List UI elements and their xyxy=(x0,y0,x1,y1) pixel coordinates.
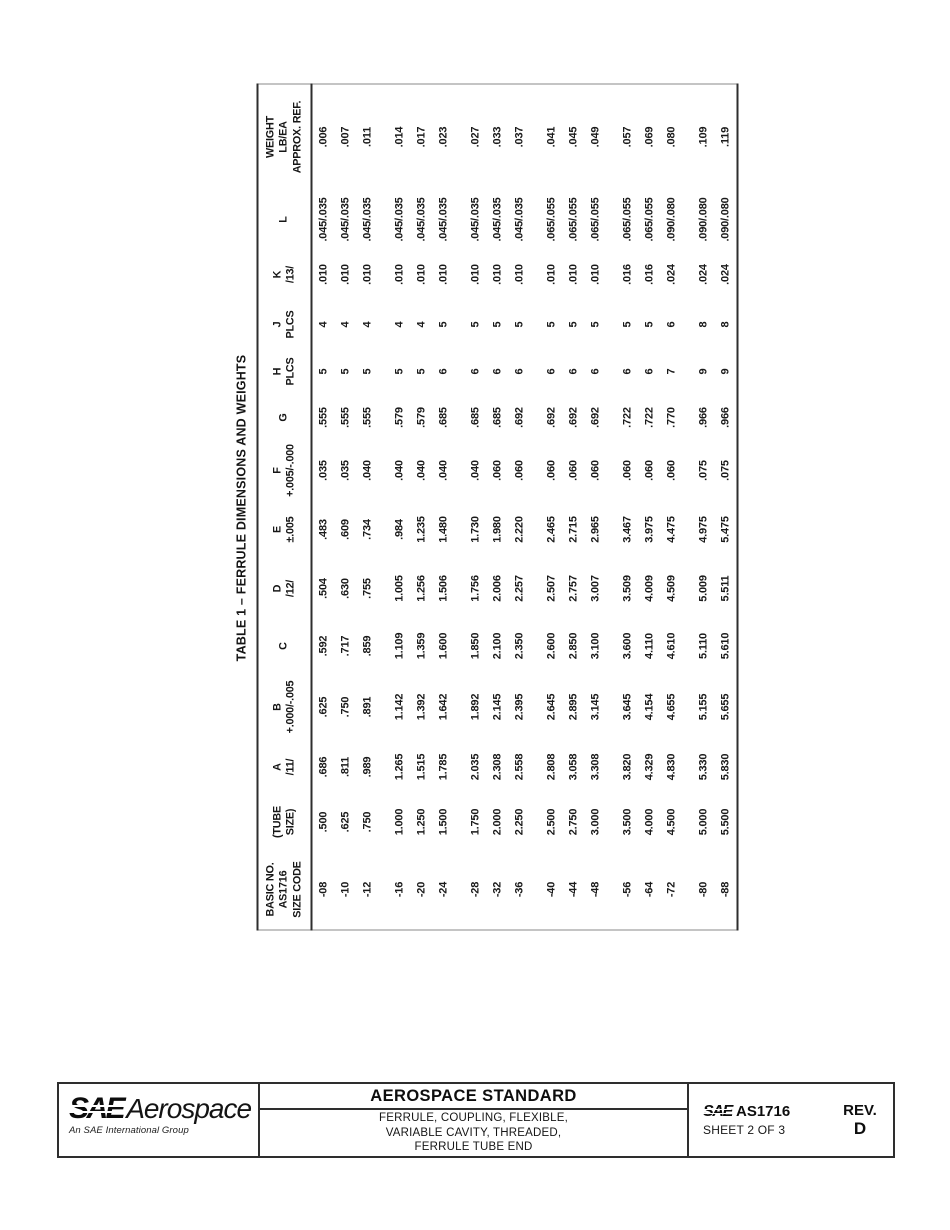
cell-j: 4 xyxy=(335,300,357,350)
cell-size-code: -48 xyxy=(585,850,607,931)
cell-e: 2.465 xyxy=(541,500,563,560)
cell-f: .040 xyxy=(433,442,455,500)
group-spacer xyxy=(531,84,541,930)
group-spacer-cell xyxy=(607,84,617,930)
cell-d: 4.509 xyxy=(661,560,683,618)
cell-h: 6 xyxy=(465,350,487,394)
table-row-size-56: -563.5003.8203.6453.6003.5093.467.060.72… xyxy=(617,84,639,930)
cell-h: 9 xyxy=(715,350,738,394)
table-row-size-36: -362.2502.5582.3952.3502.2572.220.060.69… xyxy=(509,84,531,930)
cell-tube-size: 3.500 xyxy=(617,795,639,850)
group-spacer-cell xyxy=(455,84,465,930)
cell-f: .060 xyxy=(661,442,683,500)
standard-number-line: SAEAS1716 xyxy=(703,1103,827,1121)
cell-size-code: -12 xyxy=(357,850,379,931)
cell-a: 1.515 xyxy=(411,740,433,795)
cell-f: .060 xyxy=(563,442,585,500)
cell-l: .045/.035 xyxy=(411,190,433,250)
cell-a: 2.035 xyxy=(465,740,487,795)
cell-k: .010 xyxy=(389,250,411,300)
cell-tube-size: 5.000 xyxy=(693,795,715,850)
cell-h: 6 xyxy=(563,350,585,394)
cell-e: 3.467 xyxy=(617,500,639,560)
cell-l: .090/.080 xyxy=(693,190,715,250)
cell-tube-size: 2.750 xyxy=(563,795,585,850)
cell-e: 4.475 xyxy=(661,500,683,560)
cell-h: 9 xyxy=(693,350,715,394)
cell-e: .609 xyxy=(335,500,357,560)
cell-g: .685 xyxy=(465,394,487,442)
cell-d: 5.009 xyxy=(693,560,715,618)
table-header-row: BASIC NO.AS1716SIZE CODE(TUBESIZE)A/11/B… xyxy=(258,84,312,930)
cell-b: .625 xyxy=(312,675,335,740)
column-header-c: C xyxy=(258,618,312,675)
cell-size-code: -64 xyxy=(639,850,661,931)
cell-j: 4 xyxy=(411,300,433,350)
cell-tube-size: .750 xyxy=(357,795,379,850)
cell-weight: .006 xyxy=(312,84,335,190)
cell-l: .045/.035 xyxy=(509,190,531,250)
cell-d: 3.007 xyxy=(585,560,607,618)
cell-tube-size: 1.000 xyxy=(389,795,411,850)
cell-f: .060 xyxy=(639,442,661,500)
cell-a: 1.785 xyxy=(433,740,455,795)
cell-b: 5.155 xyxy=(693,675,715,740)
cell-g: .555 xyxy=(357,394,379,442)
cell-tube-size: 4.000 xyxy=(639,795,661,850)
cell-h: 6 xyxy=(585,350,607,394)
document-type-cell: AEROSPACE STANDARD FERRULE, COUPLING, FL… xyxy=(260,1084,689,1156)
cell-a: 4.329 xyxy=(639,740,661,795)
rotated-table-block: TABLE 1 – FERRULE DIMENSIONS AND WEIGHTS… xyxy=(235,86,735,931)
cell-g: .555 xyxy=(312,394,335,442)
group-spacer-cell xyxy=(379,84,389,930)
table-row-size-10: -10.625.811.750.717.630.609.035.55554.01… xyxy=(335,84,357,930)
group-spacer xyxy=(379,84,389,930)
cell-b: 1.392 xyxy=(411,675,433,740)
sae-tagline: An SAE International Group xyxy=(69,1125,250,1136)
cell-c: 1.850 xyxy=(465,618,487,675)
cell-j: 4 xyxy=(312,300,335,350)
cell-a: 4.830 xyxy=(661,740,683,795)
sheet-number: SHEET 2 OF 3 xyxy=(703,1123,827,1137)
cell-size-code: -20 xyxy=(411,850,433,931)
cell-g: .770 xyxy=(661,394,683,442)
cell-l: .090/.080 xyxy=(715,190,738,250)
cell-g: .722 xyxy=(617,394,639,442)
cell-a: .811 xyxy=(335,740,357,795)
cell-k: .010 xyxy=(433,250,455,300)
cell-e: 2.715 xyxy=(563,500,585,560)
cell-l: .065/.055 xyxy=(585,190,607,250)
column-header-b: B+.000/-.005 xyxy=(258,675,312,740)
cell-f: .060 xyxy=(585,442,607,500)
sae-logo-cell: SAEAerospace An SAE International Group xyxy=(59,1084,260,1156)
cell-a: 5.830 xyxy=(715,740,738,795)
cell-h: 6 xyxy=(433,350,455,394)
cell-size-code: -24 xyxy=(433,850,455,931)
cell-k: .010 xyxy=(411,250,433,300)
cell-c: 4.110 xyxy=(639,618,661,675)
cell-e: 5.475 xyxy=(715,500,738,560)
cell-b: 4.655 xyxy=(661,675,683,740)
cell-c: .717 xyxy=(335,618,357,675)
sae-logo-icon: SAE xyxy=(69,1094,126,1124)
cell-e: .734 xyxy=(357,500,379,560)
table-row-size-44: -442.7503.0582.8952.8502.7572.715.060.69… xyxy=(563,84,585,930)
cell-c: 2.850 xyxy=(563,618,585,675)
cell-b: .750 xyxy=(335,675,357,740)
group-spacer xyxy=(455,84,465,930)
table-header: BASIC NO.AS1716SIZE CODE(TUBESIZE)A/11/B… xyxy=(258,84,312,930)
cell-h: 6 xyxy=(617,350,639,394)
cell-j: 5 xyxy=(509,300,531,350)
cell-weight: .041 xyxy=(541,84,563,190)
column-header-j: JPLCS xyxy=(258,300,312,350)
cell-k: .024 xyxy=(693,250,715,300)
column-header-e: E±.005 xyxy=(258,500,312,560)
cell-weight: .033 xyxy=(487,84,509,190)
cell-h: 6 xyxy=(487,350,509,394)
cell-f: .040 xyxy=(411,442,433,500)
table-row-size-28: -281.7502.0351.8921.8501.7561.730.040.68… xyxy=(465,84,487,930)
cell-size-code: -72 xyxy=(661,850,683,931)
cell-d: 2.006 xyxy=(487,560,509,618)
cell-j: 4 xyxy=(357,300,379,350)
cell-l: .045/.035 xyxy=(465,190,487,250)
cell-j: 5 xyxy=(541,300,563,350)
cell-f: .040 xyxy=(357,442,379,500)
cell-d: .504 xyxy=(312,560,335,618)
cell-f: .060 xyxy=(509,442,531,500)
cell-l: .045/.035 xyxy=(357,190,379,250)
group-spacer xyxy=(683,84,693,930)
cell-j: 5 xyxy=(585,300,607,350)
cell-e: 3.975 xyxy=(639,500,661,560)
cell-k: .010 xyxy=(357,250,379,300)
table-row-size-08: -08.500.686.625.592.504.483.035.55554.01… xyxy=(312,84,335,930)
table-row-size-72: -724.5004.8304.6554.6104.5094.475.060.77… xyxy=(661,84,683,930)
cell-tube-size: 2.500 xyxy=(541,795,563,850)
revision-cell: REV. D xyxy=(827,1084,893,1156)
cell-f: .035 xyxy=(335,442,357,500)
table-row-size-80: -805.0005.3305.1555.1105.0094.975.075.96… xyxy=(693,84,715,930)
cell-l: .045/.035 xyxy=(312,190,335,250)
cell-tube-size: .625 xyxy=(335,795,357,850)
table-row-size-40: -402.5002.8082.6452.6002.5072.465.060.69… xyxy=(541,84,563,930)
cell-e: 4.975 xyxy=(693,500,715,560)
cell-d: .630 xyxy=(335,560,357,618)
cell-g: .685 xyxy=(487,394,509,442)
cell-j: 5 xyxy=(487,300,509,350)
cell-b: 5.655 xyxy=(715,675,738,740)
cell-a: 3.820 xyxy=(617,740,639,795)
cell-weight: .011 xyxy=(357,84,379,190)
cell-size-code: -16 xyxy=(389,850,411,931)
cell-l: .065/.055 xyxy=(541,190,563,250)
cell-weight: .109 xyxy=(693,84,715,190)
cell-tube-size: 2.000 xyxy=(487,795,509,850)
cell-d: 3.509 xyxy=(617,560,639,618)
cell-c: .592 xyxy=(312,618,335,675)
cell-d: 1.756 xyxy=(465,560,487,618)
cell-tube-size: 1.750 xyxy=(465,795,487,850)
cell-weight: .037 xyxy=(509,84,531,190)
cell-tube-size: 3.000 xyxy=(585,795,607,850)
cell-b: 3.145 xyxy=(585,675,607,740)
cell-l: .045/.035 xyxy=(433,190,455,250)
cell-weight: .049 xyxy=(585,84,607,190)
cell-c: .859 xyxy=(357,618,379,675)
aerospace-logo-text: Aerospace xyxy=(126,1093,251,1124)
cell-tube-size: 4.500 xyxy=(661,795,683,850)
cell-h: 5 xyxy=(335,350,357,394)
cell-l: .065/.055 xyxy=(563,190,585,250)
cell-g: .579 xyxy=(411,394,433,442)
cell-b: .891 xyxy=(357,675,379,740)
cell-h: 6 xyxy=(639,350,661,394)
cell-b: 2.895 xyxy=(563,675,585,740)
cell-d: 1.506 xyxy=(433,560,455,618)
standard-number: AS1716 xyxy=(736,1103,790,1120)
cell-j: 6 xyxy=(661,300,683,350)
cell-j: 5 xyxy=(617,300,639,350)
group-spacer-cell xyxy=(531,84,541,930)
cell-size-code: -10 xyxy=(335,850,357,931)
cell-weight: .057 xyxy=(617,84,639,190)
cell-j: 8 xyxy=(715,300,738,350)
column-header-tube-size: (TUBESIZE) xyxy=(258,795,312,850)
cell-g: .692 xyxy=(585,394,607,442)
cell-g: .692 xyxy=(509,394,531,442)
cell-g: .692 xyxy=(563,394,585,442)
cell-e: 1.730 xyxy=(465,500,487,560)
cell-j: 5 xyxy=(639,300,661,350)
column-header-weight: WEIGHTLB/EAAPPROX. REF. xyxy=(258,84,312,190)
cell-d: 2.257 xyxy=(509,560,531,618)
cell-size-code: -56 xyxy=(617,850,639,931)
cell-b: 1.892 xyxy=(465,675,487,740)
cell-a: 3.308 xyxy=(585,740,607,795)
group-spacer xyxy=(607,84,617,930)
cell-c: 4.610 xyxy=(661,618,683,675)
cell-j: 5 xyxy=(433,300,455,350)
column-header-d: D/12/ xyxy=(258,560,312,618)
standard-number-cell: SAEAS1716 SHEET 2 OF 3 xyxy=(689,1084,827,1156)
cell-weight: .014 xyxy=(389,84,411,190)
cell-k: .010 xyxy=(585,250,607,300)
cell-l: .045/.035 xyxy=(335,190,357,250)
cell-k: .010 xyxy=(563,250,585,300)
cell-f: .040 xyxy=(465,442,487,500)
document-type: AEROSPACE STANDARD xyxy=(260,1084,687,1110)
column-header-l: L xyxy=(258,190,312,250)
cell-e: .483 xyxy=(312,500,335,560)
cell-l: .065/.055 xyxy=(617,190,639,250)
cell-b: 1.142 xyxy=(389,675,411,740)
cell-c: 3.100 xyxy=(585,618,607,675)
cell-b: 2.395 xyxy=(509,675,531,740)
cell-c: 3.600 xyxy=(617,618,639,675)
cell-weight: .119 xyxy=(715,84,738,190)
cell-g: .692 xyxy=(541,394,563,442)
cell-d: 2.507 xyxy=(541,560,563,618)
table-row-size-24: -241.5001.7851.6421.6001.5061.480.040.68… xyxy=(433,84,455,930)
cell-size-code: -36 xyxy=(509,850,531,931)
cell-a: .989 xyxy=(357,740,379,795)
cell-size-code: -32 xyxy=(487,850,509,931)
cell-e: 1.480 xyxy=(433,500,455,560)
cell-g: .555 xyxy=(335,394,357,442)
cell-f: .075 xyxy=(715,442,738,500)
document-page: TABLE 1 – FERRULE DIMENSIONS AND WEIGHTS… xyxy=(0,0,950,1230)
cell-g: .579 xyxy=(389,394,411,442)
cell-e: 2.220 xyxy=(509,500,531,560)
cell-a: .686 xyxy=(312,740,335,795)
cell-c: 1.600 xyxy=(433,618,455,675)
document-title: FERRULE, COUPLING, FLEXIBLE, VARIABLE CA… xyxy=(260,1110,687,1156)
table-row-size-16: -161.0001.2651.1421.1091.005.984.040.579… xyxy=(389,84,411,930)
sae-mini-logo-icon: SAE xyxy=(703,1103,732,1121)
cell-d: 2.757 xyxy=(563,560,585,618)
cell-e: 1.235 xyxy=(411,500,433,560)
cell-h: 5 xyxy=(389,350,411,394)
table-title: TABLE 1 – FERRULE DIMENSIONS AND WEIGHTS xyxy=(235,86,255,931)
cell-size-code: -80 xyxy=(693,850,715,931)
cell-c: 2.350 xyxy=(509,618,531,675)
cell-k: .010 xyxy=(509,250,531,300)
cell-b: 2.645 xyxy=(541,675,563,740)
cell-h: 5 xyxy=(411,350,433,394)
cell-d: 5.511 xyxy=(715,560,738,618)
cell-size-code: -08 xyxy=(312,850,335,931)
table-row-size-88: -885.5005.8305.6555.6105.5115.475.075.96… xyxy=(715,84,738,930)
document-title-line: FERRULE, COUPLING, FLEXIBLE, xyxy=(379,1111,568,1126)
cell-g: .685 xyxy=(433,394,455,442)
cell-a: 1.265 xyxy=(389,740,411,795)
cell-weight: .023 xyxy=(433,84,455,190)
cell-k: .010 xyxy=(465,250,487,300)
cell-h: 5 xyxy=(312,350,335,394)
cell-c: 5.610 xyxy=(715,618,738,675)
cell-weight: .017 xyxy=(411,84,433,190)
cell-c: 1.359 xyxy=(411,618,433,675)
cell-a: 2.808 xyxy=(541,740,563,795)
cell-j: 4 xyxy=(389,300,411,350)
cell-g: .966 xyxy=(715,394,738,442)
cell-j: 5 xyxy=(465,300,487,350)
cell-e: 1.980 xyxy=(487,500,509,560)
cell-e: 2.965 xyxy=(585,500,607,560)
cell-weight: .080 xyxy=(661,84,683,190)
cell-d: .755 xyxy=(357,560,379,618)
cell-f: .075 xyxy=(693,442,715,500)
cell-c: 2.600 xyxy=(541,618,563,675)
cell-d: 1.256 xyxy=(411,560,433,618)
cell-k: .010 xyxy=(487,250,509,300)
document-title-line: FERRULE TUBE END xyxy=(414,1140,532,1155)
table-row-size-64: -644.0004.3294.1544.1104.0093.975.060.72… xyxy=(639,84,661,930)
cell-f: .060 xyxy=(541,442,563,500)
cell-b: 1.642 xyxy=(433,675,455,740)
cell-d: 1.005 xyxy=(389,560,411,618)
cell-l: .045/.035 xyxy=(389,190,411,250)
ferrule-dimensions-table: BASIC NO.AS1716SIZE CODE(TUBESIZE)A/11/B… xyxy=(257,84,739,931)
table-body: -08.500.686.625.592.504.483.035.55554.01… xyxy=(312,84,738,930)
column-header-h: HPLCS xyxy=(258,350,312,394)
revision-label: REV. xyxy=(843,1102,877,1119)
cell-f: .060 xyxy=(487,442,509,500)
cell-h: 6 xyxy=(541,350,563,394)
title-block: SAEAerospace An SAE International Group … xyxy=(57,1082,895,1158)
cell-c: 2.100 xyxy=(487,618,509,675)
cell-e: .984 xyxy=(389,500,411,560)
group-spacer-cell xyxy=(683,84,693,930)
cell-k: .016 xyxy=(639,250,661,300)
cell-tube-size: 5.500 xyxy=(715,795,738,850)
cell-j: 5 xyxy=(563,300,585,350)
document-title-line: VARIABLE CAVITY, THREADED, xyxy=(386,1126,562,1141)
cell-j: 8 xyxy=(693,300,715,350)
cell-weight: .045 xyxy=(563,84,585,190)
cell-a: 2.558 xyxy=(509,740,531,795)
cell-size-code: -88 xyxy=(715,850,738,931)
cell-weight: .027 xyxy=(465,84,487,190)
cell-k: .024 xyxy=(715,250,738,300)
cell-l: .045/.035 xyxy=(487,190,509,250)
cell-f: .060 xyxy=(617,442,639,500)
cell-weight: .007 xyxy=(335,84,357,190)
cell-size-code: -40 xyxy=(541,850,563,931)
table-row-size-48: -483.0003.3083.1453.1003.0072.965.060.69… xyxy=(585,84,607,930)
cell-g: .722 xyxy=(639,394,661,442)
cell-k: .010 xyxy=(335,250,357,300)
cell-weight: .069 xyxy=(639,84,661,190)
cell-h: 6 xyxy=(509,350,531,394)
cell-l: .065/.055 xyxy=(639,190,661,250)
cell-a: 2.308 xyxy=(487,740,509,795)
cell-c: 1.109 xyxy=(389,618,411,675)
cell-b: 4.154 xyxy=(639,675,661,740)
column-header-f: F+.005/-.000 xyxy=(258,442,312,500)
column-header-size-code: BASIC NO.AS1716SIZE CODE xyxy=(258,850,312,931)
cell-c: 5.110 xyxy=(693,618,715,675)
cell-d: 4.009 xyxy=(639,560,661,618)
column-header-g: G xyxy=(258,394,312,442)
cell-k: .016 xyxy=(617,250,639,300)
cell-a: 3.058 xyxy=(563,740,585,795)
column-header-a: A/11/ xyxy=(258,740,312,795)
cell-b: 2.145 xyxy=(487,675,509,740)
cell-tube-size: 2.250 xyxy=(509,795,531,850)
cell-tube-size: .500 xyxy=(312,795,335,850)
table-row-size-32: -322.0002.3082.1452.1002.0061.980.060.68… xyxy=(487,84,509,930)
table-row-size-20: -201.2501.5151.3921.3591.2561.235.040.57… xyxy=(411,84,433,930)
cell-a: 5.330 xyxy=(693,740,715,795)
column-header-k: K/13/ xyxy=(258,250,312,300)
revision-value: D xyxy=(854,1119,866,1139)
cell-tube-size: 1.500 xyxy=(433,795,455,850)
cell-size-code: -28 xyxy=(465,850,487,931)
cell-k: .024 xyxy=(661,250,683,300)
cell-k: .010 xyxy=(541,250,563,300)
cell-k: .010 xyxy=(312,250,335,300)
sae-aerospace-logo: SAEAerospace xyxy=(69,1094,250,1124)
cell-size-code: -44 xyxy=(563,850,585,931)
cell-f: .040 xyxy=(389,442,411,500)
cell-g: .966 xyxy=(693,394,715,442)
cell-b: 3.645 xyxy=(617,675,639,740)
